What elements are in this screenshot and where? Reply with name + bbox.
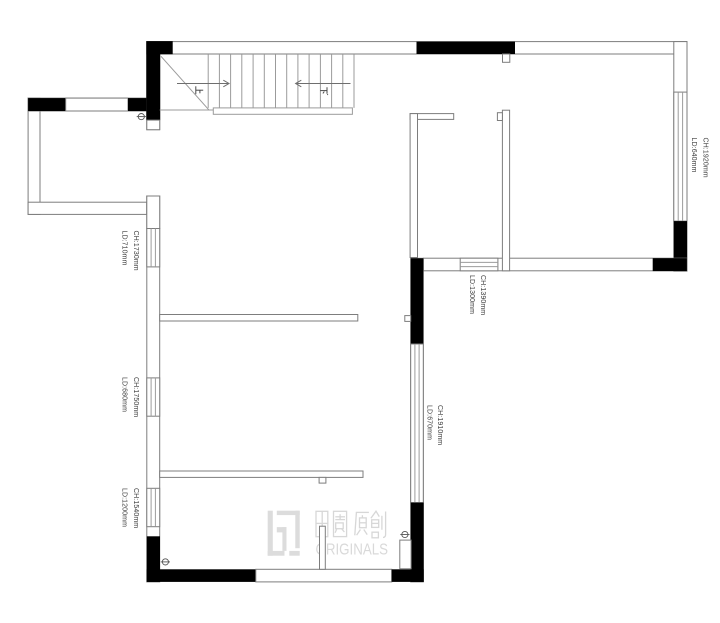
svg-text:CH:1540mm: CH:1540mm: [132, 488, 139, 528]
svg-text:LD:640mm: LD:640mm: [690, 138, 697, 173]
svg-text:CH:1730mm: CH:1730mm: [132, 231, 139, 271]
svg-text:LD:710mm: LD:710mm: [121, 231, 128, 266]
svg-text:ORIGINALS: ORIGINALS: [316, 542, 389, 559]
svg-text:LD:1300mm: LD:1300mm: [468, 275, 475, 314]
svg-text:CH:1750mm: CH:1750mm: [132, 377, 139, 417]
svg-text:LD:1200mm: LD:1200mm: [121, 488, 128, 527]
svg-text:CH:1910mm: CH:1910mm: [436, 405, 443, 445]
svg-text:CH:1920mm: CH:1920mm: [701, 138, 708, 178]
svg-text:LD:680mm: LD:680mm: [121, 377, 128, 412]
svg-text:LD:670mm: LD:670mm: [425, 405, 432, 440]
svg-text:CH:1390mm: CH:1390mm: [479, 275, 486, 315]
